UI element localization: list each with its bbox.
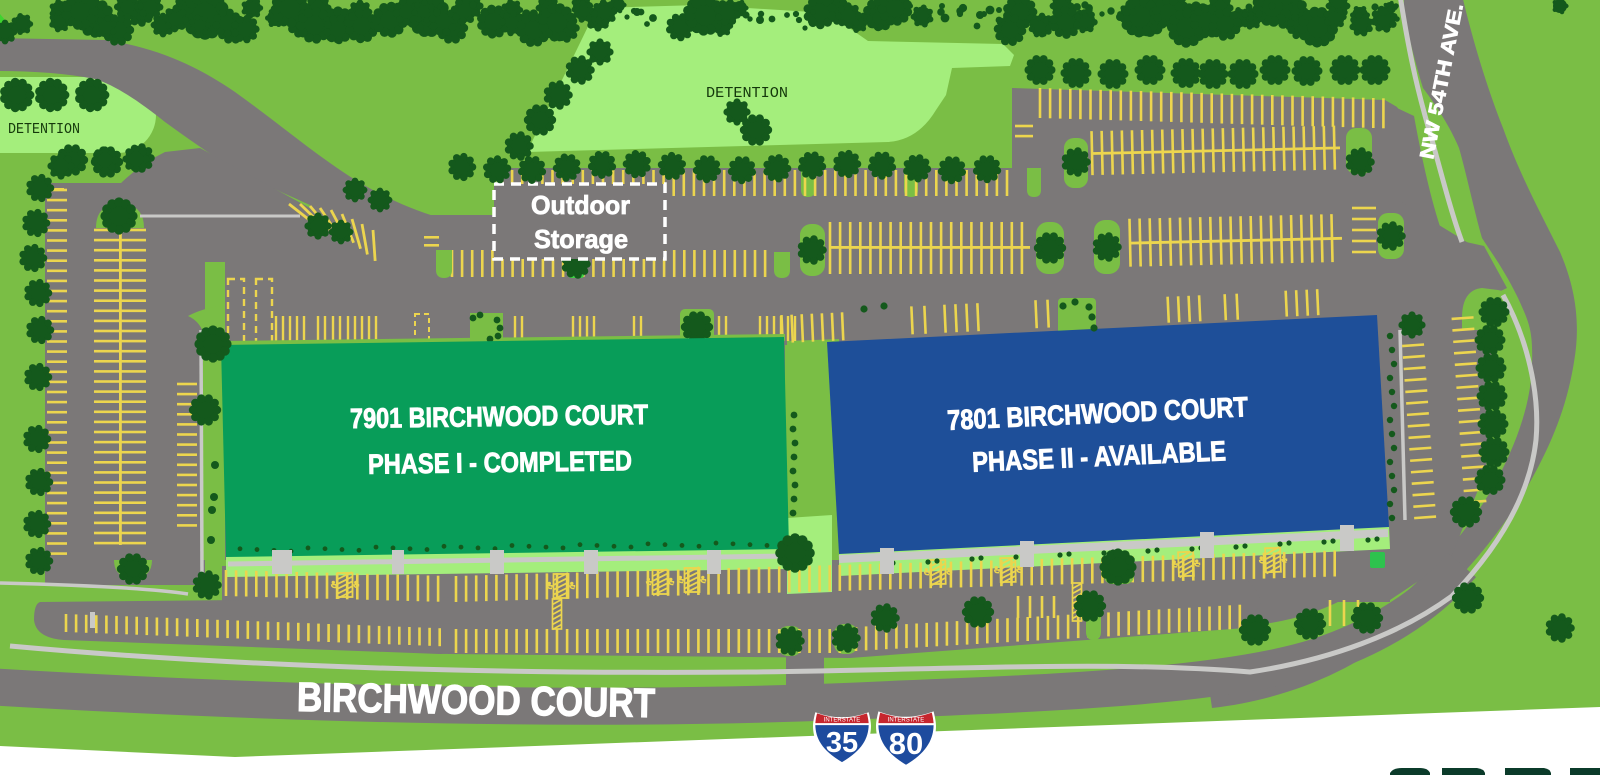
svg-text:Outdoor: Outdoor [531, 190, 630, 220]
svg-text:80: 80 [889, 726, 923, 761]
svg-text:7901 BIRCHWOOD COURT: 7901 BIRCHWOOD COURT [350, 399, 648, 434]
svg-text:Storage: Storage [534, 224, 628, 254]
svg-text:PHASE I - COMPLETED: PHASE I - COMPLETED [368, 445, 632, 480]
svg-text:35: 35 [826, 727, 858, 759]
svg-text:BIRCHWOOD COURT: BIRCHWOOD COURT [297, 674, 656, 726]
svg-text:DETENTION: DETENTION [706, 85, 788, 102]
svg-text:INTERSTATE: INTERSTATE [824, 717, 860, 723]
svg-text:DETENTION: DETENTION [8, 121, 80, 138]
svg-text:INTERSTATE: INTERSTATE [888, 717, 924, 723]
